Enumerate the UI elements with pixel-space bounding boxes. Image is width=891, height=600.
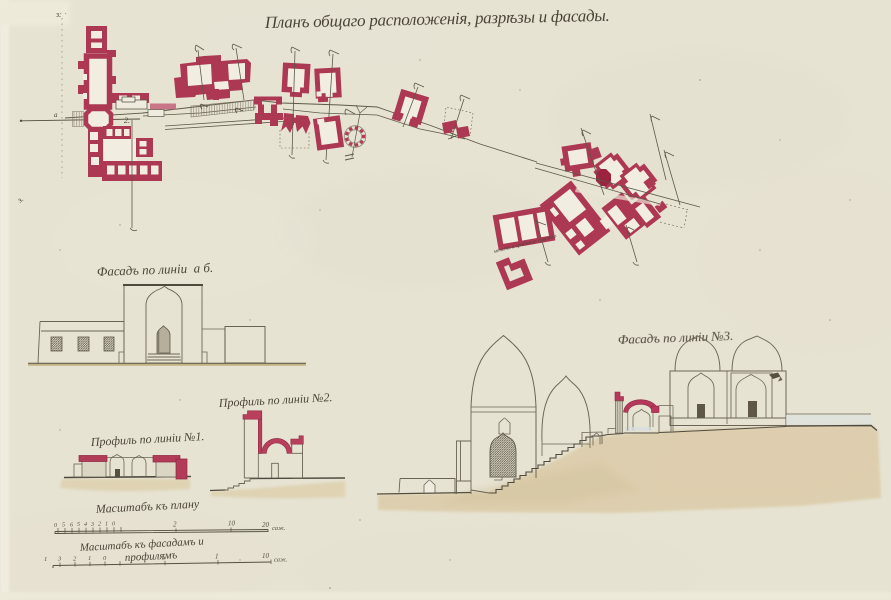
svg-text:1: 1 <box>88 555 91 562</box>
svg-text:а: а <box>54 111 58 119</box>
svg-text:з.: з. <box>55 10 61 19</box>
svg-text:3: 3 <box>90 522 94 528</box>
svg-text:20: 20 <box>262 521 270 529</box>
svg-text:1: 1 <box>105 522 108 528</box>
svg-text:10: 10 <box>262 552 270 560</box>
svg-text:5: 5 <box>162 554 166 562</box>
svg-text:2.: 2. <box>124 116 130 125</box>
svg-text:6: 6 <box>70 522 73 528</box>
svg-text:1: 1 <box>44 556 47 563</box>
svg-text:10: 10 <box>228 520 236 528</box>
svg-text:5: 5 <box>77 522 80 528</box>
svg-text:саж.: саж. <box>272 525 286 532</box>
svg-text:2: 2 <box>98 522 101 528</box>
svg-text:0: 0 <box>112 521 115 527</box>
svg-text:саж.: саж. <box>274 557 288 564</box>
svg-text:4: 4 <box>84 521 87 528</box>
svg-text:2: 2 <box>173 521 177 529</box>
svg-text:5: 5 <box>62 523 65 529</box>
svg-text:0: 0 <box>54 523 57 529</box>
svg-text:1: 1 <box>215 553 219 561</box>
